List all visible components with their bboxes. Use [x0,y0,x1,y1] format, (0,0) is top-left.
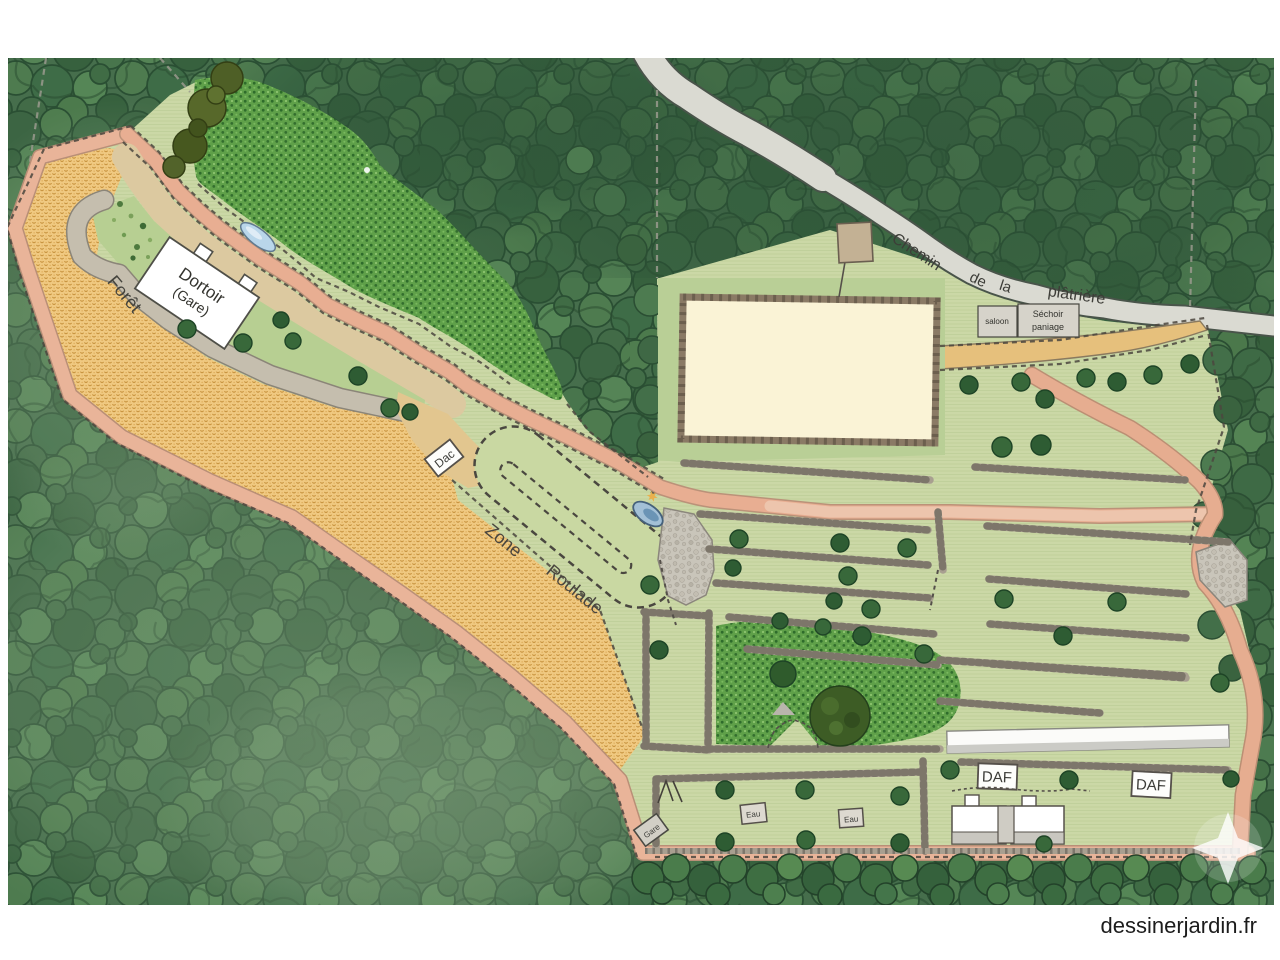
svg-text:DAF: DAF [982,768,1013,786]
svg-text:DAF: DAF [1135,776,1166,795]
svg-text:paniage: paniage [1032,322,1064,332]
svg-text:Eau: Eau [844,815,859,825]
svg-text:dessinerjardin.fr: dessinerjardin.fr [1100,913,1257,938]
svg-text:Eau: Eau [746,809,761,819]
svg-text:Séchoir: Séchoir [1033,309,1064,319]
svg-text:saloon: saloon [985,317,1009,326]
